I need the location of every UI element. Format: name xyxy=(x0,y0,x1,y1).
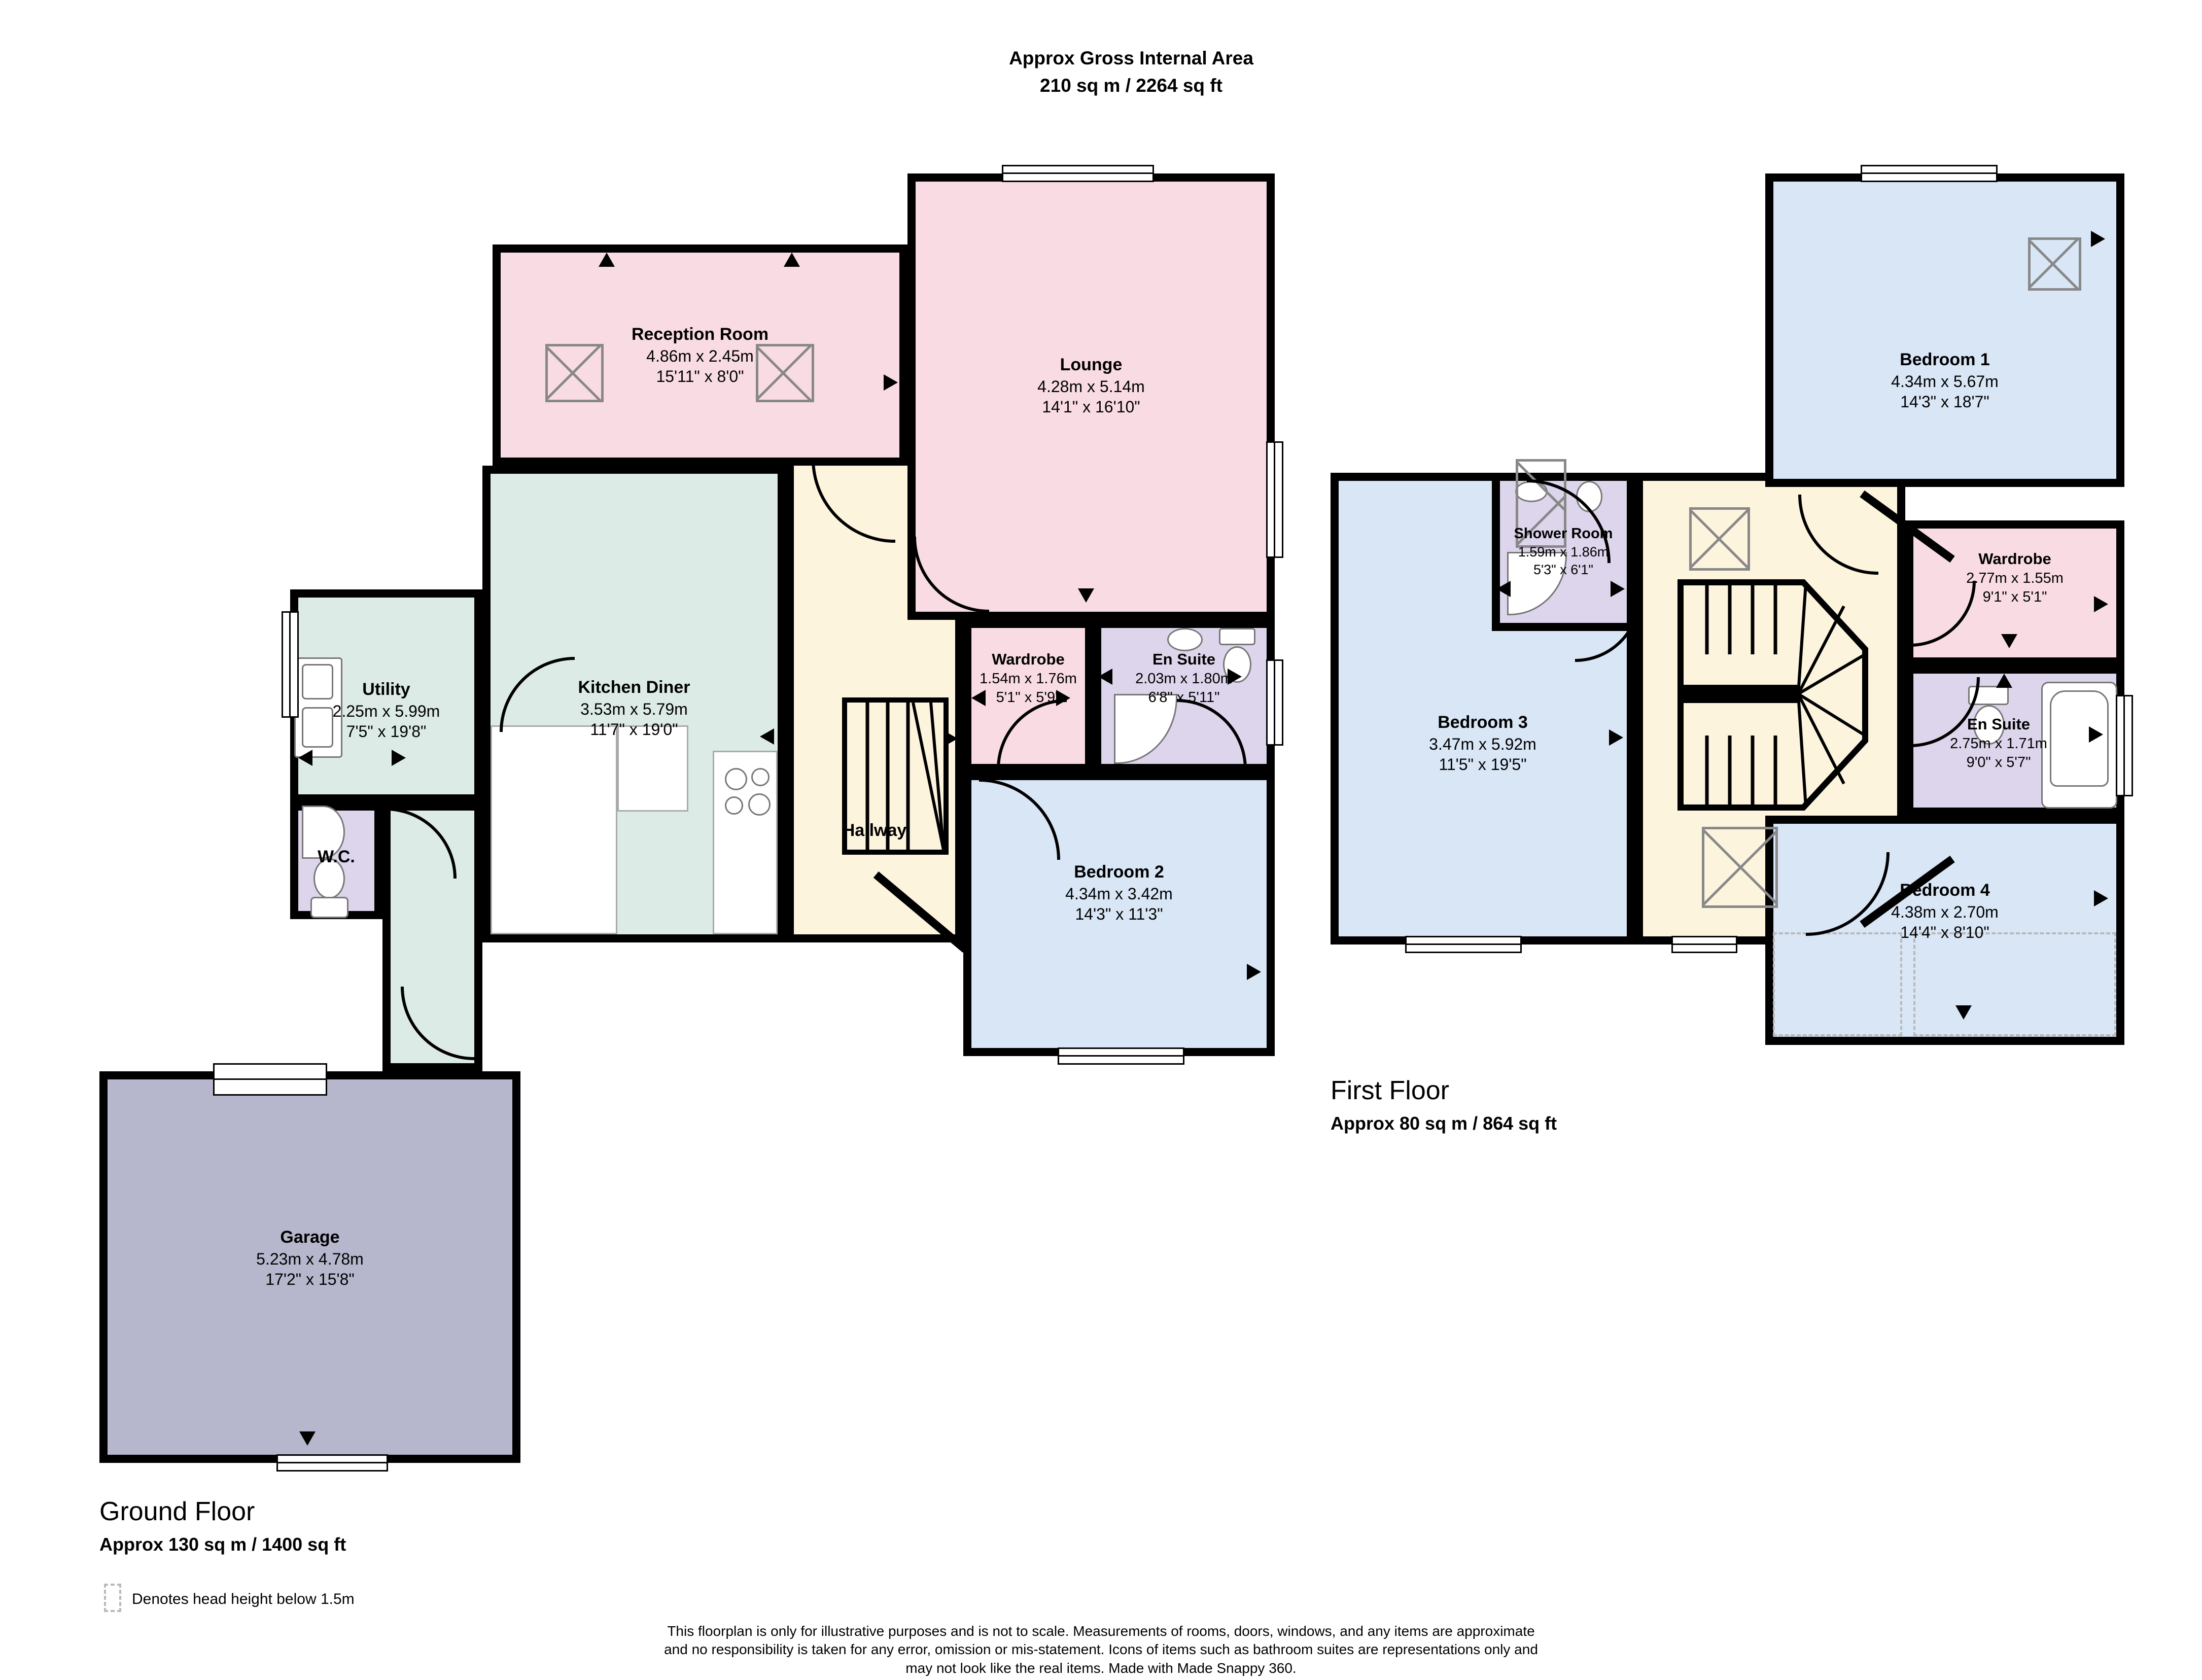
kitchen-counter xyxy=(491,725,617,934)
direction-arrow-icon xyxy=(2094,596,2108,612)
direction-arrow-icon xyxy=(1611,581,1625,597)
room-dims-imperial: 11'5" x 19'5" xyxy=(1429,754,1536,775)
direction-arrow-icon xyxy=(2001,634,2017,648)
rooflight-icon xyxy=(2028,237,2081,291)
hob-icon xyxy=(748,793,771,816)
room-label: Bedroom 2 4.34m x 3.42m 14'3" x 11'3" xyxy=(1065,861,1173,925)
footer-line3: may not look like the real items. Made w… xyxy=(0,1659,2202,1677)
legend-swatch xyxy=(104,1584,121,1612)
rooflight-icon xyxy=(1689,507,1750,571)
direction-arrow-icon xyxy=(943,730,958,747)
floor-name: Ground Floor xyxy=(99,1496,346,1527)
room-garage: Garage 5.23m x 4.78m 17'2" x 15'8" xyxy=(99,1071,520,1463)
room-label: Bedroom 3 3.47m x 5.92m 11'5" x 19'5" xyxy=(1429,712,1536,775)
room-dims-imperial: 9'1" x 5'1" xyxy=(1966,588,2064,607)
room-dims-imperial: 14'3" x 18'7" xyxy=(1891,392,1999,412)
room-label: Bedroom 1 4.34m x 5.67m 14'3" x 18'7" xyxy=(1891,349,1999,412)
direction-arrow-icon xyxy=(1228,669,1242,685)
sink-icon xyxy=(302,664,333,699)
footer-line2: and no responsibility is taken for any e… xyxy=(0,1640,2202,1659)
direction-arrow-icon xyxy=(760,728,774,745)
room-name: En Suite xyxy=(1135,649,1233,670)
ground-floor-label: Ground Floor Approx 130 sq m / 1400 sq f… xyxy=(99,1496,346,1555)
room-name: Bedroom 3 xyxy=(1429,712,1536,734)
room-dims-imperial: 14'4" x 8'10" xyxy=(1891,922,1999,943)
room-dims-metric: 4.34m x 5.67m xyxy=(1891,371,1999,392)
legend-text: Denotes head height below 1.5m xyxy=(132,1591,355,1608)
room-name: Bedroom 2 xyxy=(1065,861,1173,884)
room-dims-metric: 4.34m x 3.42m xyxy=(1065,884,1173,904)
room-label: Garage 5.23m x 4.78m 17'2" x 15'8" xyxy=(256,1227,364,1290)
room-name: Wardrobe xyxy=(980,649,1077,670)
room-dims-imperial: 15'11" x 8'0" xyxy=(632,366,768,387)
room-name: Utility xyxy=(333,679,440,701)
room-name: Kitchen Diner xyxy=(578,677,690,699)
room-dims-metric: 4.38m x 2.70m xyxy=(1891,902,1999,923)
floor-name: First Floor xyxy=(1331,1075,1557,1106)
room-dims-metric: 2.77m x 1.55m xyxy=(1966,569,2064,588)
room-dims-metric: 2.03m x 1.80m xyxy=(1135,670,1233,688)
direction-arrow-icon xyxy=(392,750,406,766)
floor-area: Approx 130 sq m / 1400 sq ft xyxy=(99,1534,346,1555)
room-dims-imperial: 14'3" x 11'3" xyxy=(1065,904,1173,925)
room-dims-metric: 1.54m x 1.76m xyxy=(980,670,1077,688)
room-dims-metric: 2.25m x 5.99m xyxy=(333,701,440,722)
room-name: Wardrobe xyxy=(1966,549,2064,569)
room-dims-imperial: 9'0" x 5'7" xyxy=(1950,753,2047,772)
head-height-area xyxy=(1773,932,1902,1036)
window-marker xyxy=(1861,165,1998,182)
rooflight-icon xyxy=(1702,827,1778,908)
window-marker xyxy=(276,1454,388,1472)
direction-arrow-icon xyxy=(784,253,800,267)
room-dims-metric: 4.28m x 5.14m xyxy=(1037,376,1145,397)
direction-arrow-icon xyxy=(599,253,615,267)
window-marker xyxy=(1002,165,1154,182)
room-label: En Suite 2.75m x 1.71m 9'0" x 5'7" xyxy=(1950,714,2047,772)
room-label: Hallway xyxy=(843,820,907,842)
room-label: W.C. xyxy=(318,846,355,868)
window-marker xyxy=(1058,1047,1184,1065)
stairs-icon xyxy=(1676,578,1869,812)
direction-arrow-icon xyxy=(1078,588,1094,603)
room-name: Lounge xyxy=(1037,354,1145,376)
direction-arrow-icon xyxy=(1609,729,1623,746)
head-height-area xyxy=(1913,932,2116,1036)
footer-disclaimer: This floorplan is only for illustrative … xyxy=(0,1622,2202,1677)
direction-arrow-icon xyxy=(2091,231,2105,247)
basin-icon xyxy=(1167,628,1203,651)
floorplan-canvas: Approx Gross Internal Area 210 sq m / 22… xyxy=(0,0,2202,1680)
window-marker xyxy=(2116,695,2133,796)
title-line2: 210 sq m / 2264 sq ft xyxy=(878,72,1385,99)
direction-arrow-icon xyxy=(299,1431,316,1446)
room-dims-metric: 3.47m x 5.92m xyxy=(1429,734,1536,755)
rooflight-icon xyxy=(545,344,604,402)
title-line1: Approx Gross Internal Area xyxy=(878,45,1385,72)
direction-arrow-icon xyxy=(1496,581,1511,597)
room-dims-metric: 2.75m x 1.71m xyxy=(1950,734,2047,753)
window-marker xyxy=(282,611,299,718)
direction-arrow-icon xyxy=(2094,890,2108,906)
bath-icon xyxy=(2041,682,2117,809)
room-dims-imperial: 7'5" x 19'8" xyxy=(333,721,440,742)
direction-arrow-icon xyxy=(884,374,898,391)
direction-arrow-icon xyxy=(1056,690,1070,706)
room-label: Kitchen Diner 3.53m x 5.79m 11'7" x 19'0… xyxy=(578,677,690,740)
direction-arrow-icon xyxy=(2089,726,2103,743)
toilet-icon xyxy=(1219,628,1255,645)
footer-line1: This floorplan is only for illustrative … xyxy=(0,1622,2202,1640)
room-label: Reception Room 4.86m x 2.45m 15'11" x 8'… xyxy=(632,324,768,387)
room-label: Lounge 4.28m x 5.14m 14'1" x 16'10" xyxy=(1037,354,1145,417)
direction-arrow-icon xyxy=(1996,674,2012,688)
room-label: En Suite 2.03m x 1.80m 6'8" x 5'11" xyxy=(1135,649,1233,707)
room-dims-imperial: 14'1" x 16'10" xyxy=(1037,397,1145,417)
room-name: Reception Room xyxy=(632,324,768,346)
room-bedroom1: Bedroom 1 4.34m x 5.67m 14'3" x 18'7" xyxy=(1765,173,2124,487)
direction-arrow-icon xyxy=(971,690,986,706)
window-marker xyxy=(1405,936,1522,953)
room-dims-imperial: 11'7" x 19'0" xyxy=(578,719,690,740)
page-title: Approx Gross Internal Area 210 sq m / 22… xyxy=(878,45,1385,99)
room-label: Wardrobe 2.77m x 1.55m 9'1" x 5'1" xyxy=(1966,549,2064,607)
window-marker xyxy=(1671,936,1737,953)
window-marker xyxy=(1266,659,1283,746)
room-dims-imperial: 5'3" x 6'1" xyxy=(1514,561,1613,579)
window-marker xyxy=(1266,441,1283,558)
room-name: Bedroom 4 xyxy=(1891,880,1999,902)
direction-arrow-icon xyxy=(1247,964,1261,980)
sink-icon xyxy=(302,707,333,748)
direction-arrow-icon xyxy=(1955,1005,1972,1020)
room-label: Utility 2.25m x 5.99m 7'5" x 19'8" xyxy=(333,679,440,742)
room-name: W.C. xyxy=(318,846,355,868)
first-floor-label: First Floor Approx 80 sq m / 864 sq ft xyxy=(1331,1075,1557,1134)
room-dims-metric: 5.23m x 4.78m xyxy=(256,1249,364,1270)
room-dims-metric: 3.53m x 5.79m xyxy=(578,699,690,720)
garage-door-opening xyxy=(213,1063,327,1096)
room-name: Bedroom 1 xyxy=(1891,349,1999,371)
toilet-icon xyxy=(310,897,348,918)
hob-icon xyxy=(725,796,743,815)
hob-icon xyxy=(751,768,770,786)
room-name: Garage xyxy=(256,1227,364,1249)
room-dims-imperial: 17'2" x 15'8" xyxy=(256,1269,364,1290)
room-name: Hallway xyxy=(843,820,907,842)
room-label: Bedroom 4 4.38m x 2.70m 14'4" x 8'10" xyxy=(1891,880,1999,943)
hob-icon xyxy=(725,768,747,790)
floor-area: Approx 80 sq m / 864 sq ft xyxy=(1331,1113,1557,1134)
room-dims-metric: 4.86m x 2.45m xyxy=(632,346,768,367)
direction-arrow-icon xyxy=(298,750,312,766)
direction-arrow-icon xyxy=(1098,669,1112,685)
